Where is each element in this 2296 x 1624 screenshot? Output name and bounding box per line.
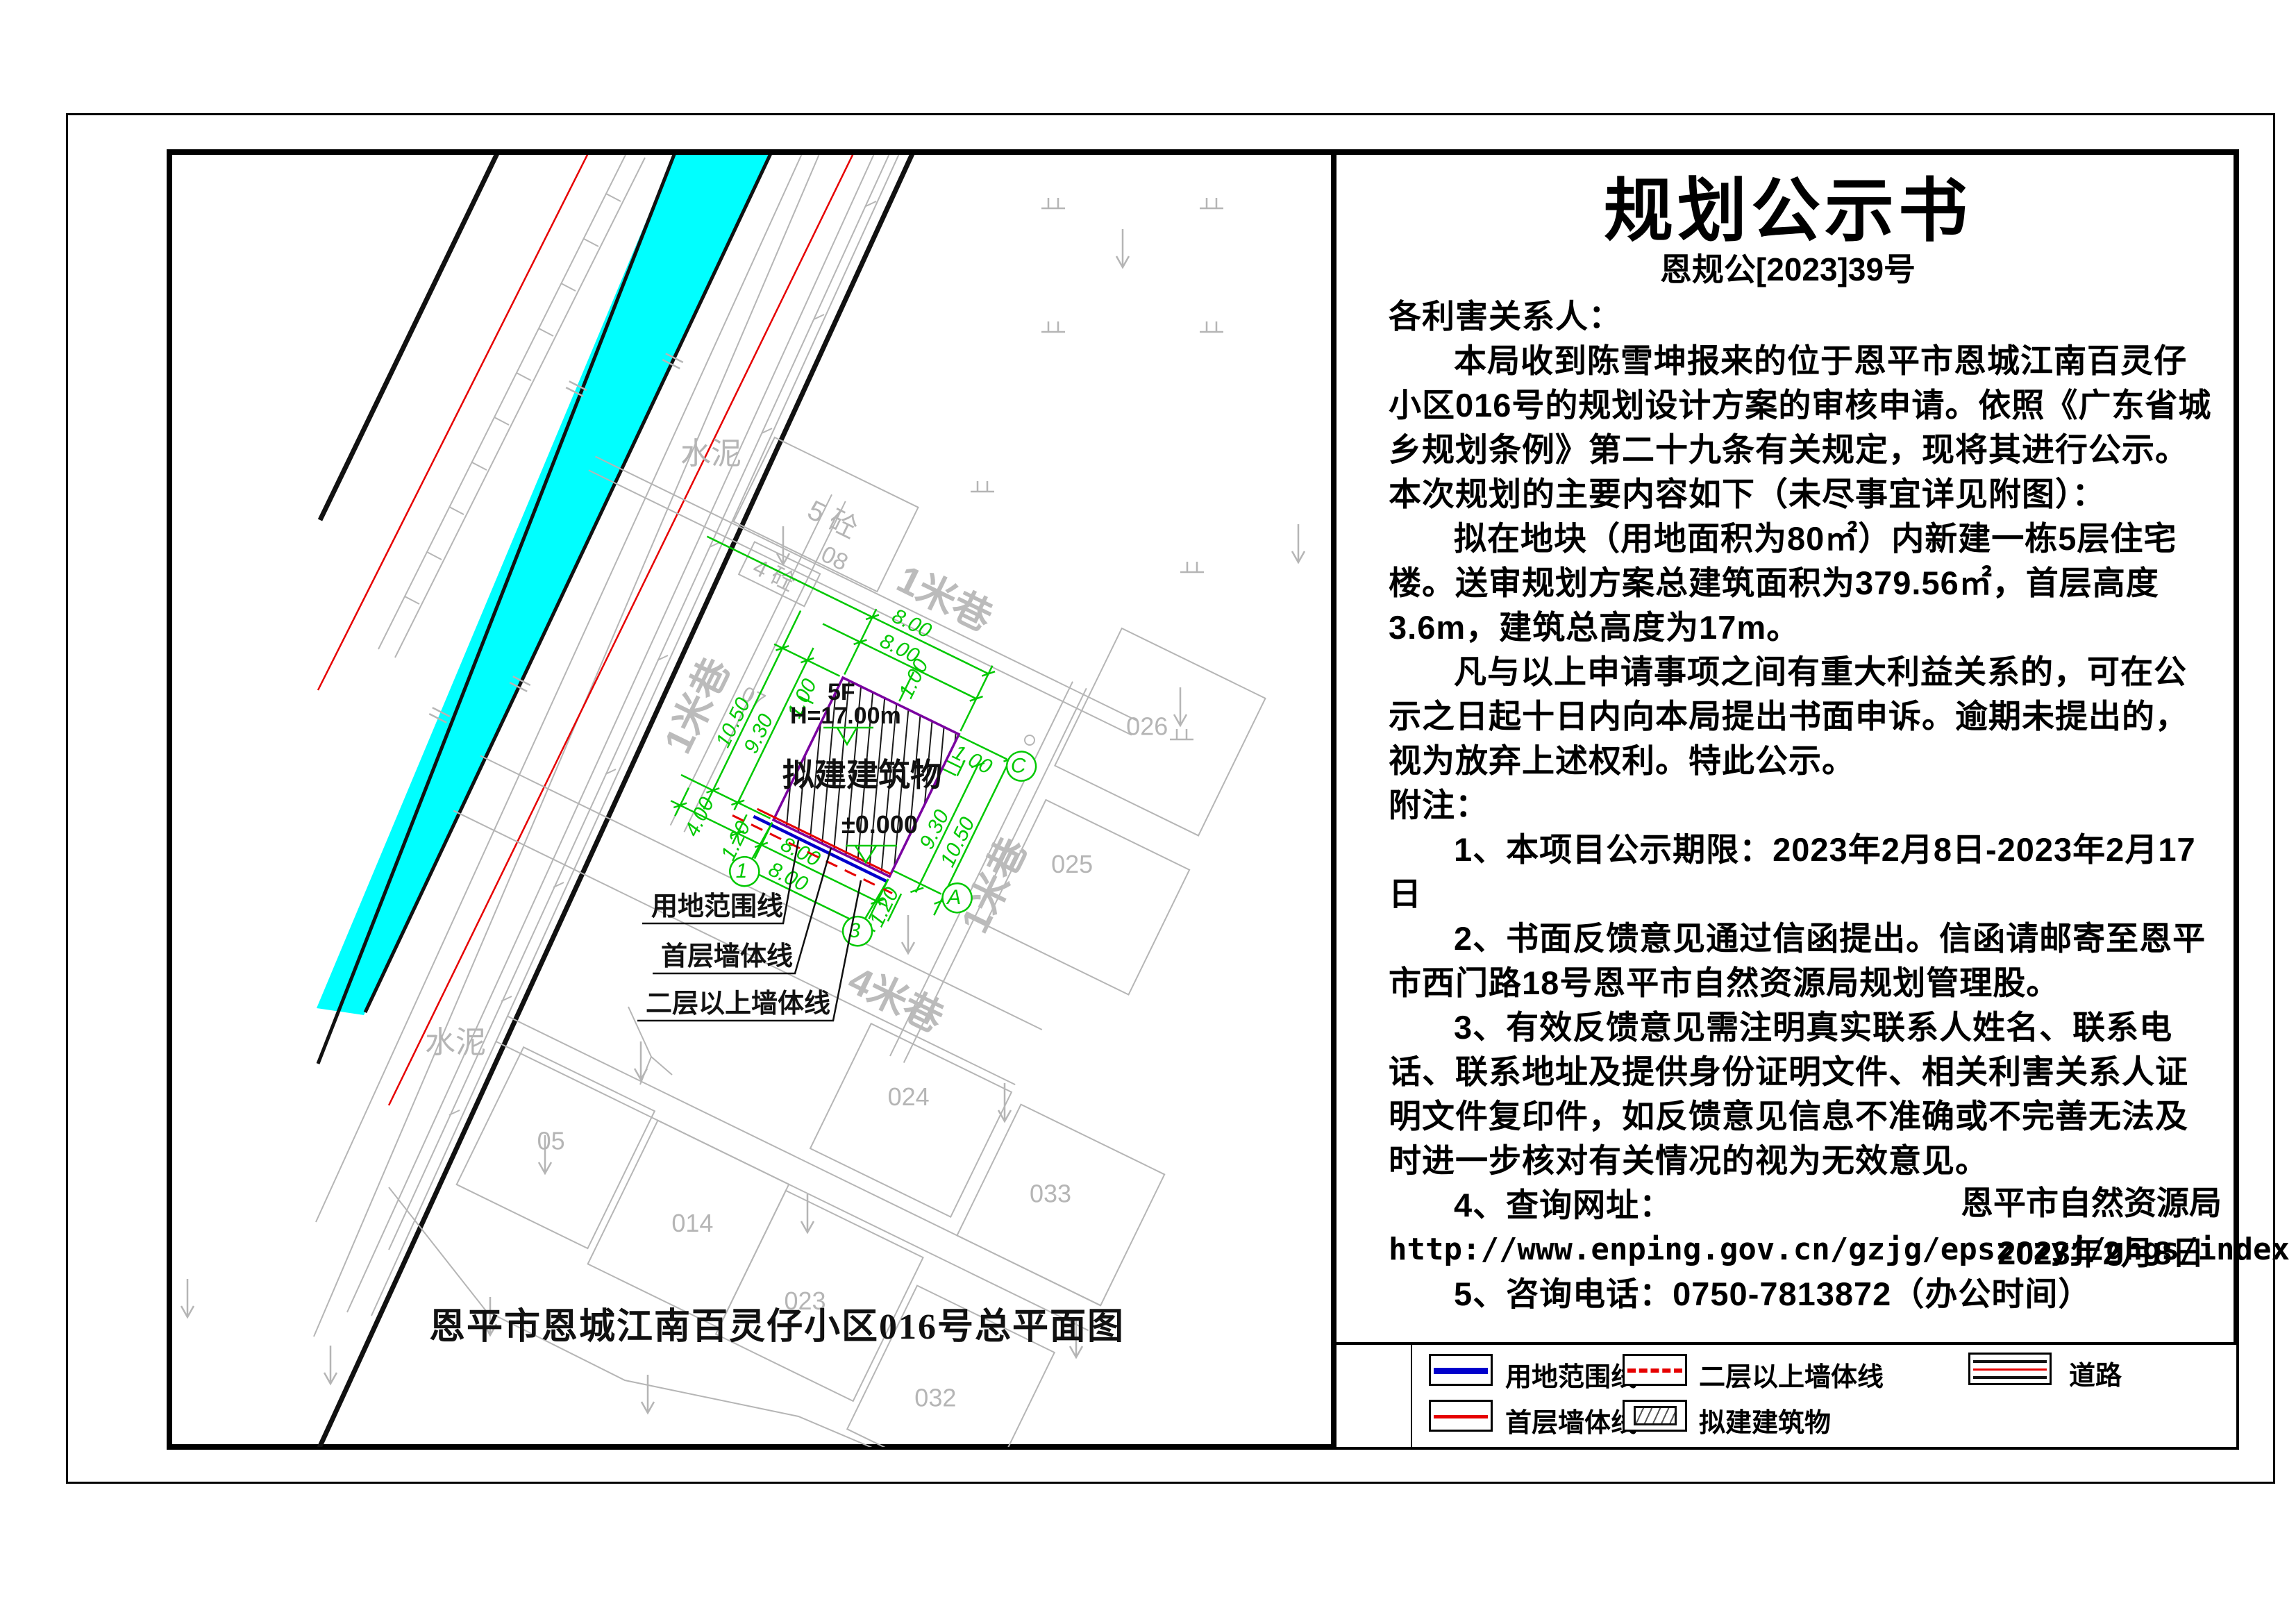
water-channel — [317, 155, 773, 1015]
legend-label-road: 道路 — [2069, 1354, 2122, 1392]
paragraph-project: 拟在地块（用地面积为80㎡）内新建一栋5层住宅楼。送审规划方案总建筑面积为379… — [1389, 517, 2215, 650]
planning-notice-page: 水泥 水泥 5 砼 08 — [0, 0, 2296, 1624]
legend-symbol-first-floor — [1429, 1400, 1493, 1432]
note-phone: 5、咨询电话：0750-7813872（办公时间） — [1389, 1272, 2215, 1316]
annotation-boundary: 用地范围线 — [651, 892, 783, 921]
parcel-number: 024 — [888, 1082, 930, 1111]
street-label-bottom: 4米巷 — [841, 957, 950, 1041]
ground-label-cement: 水泥 — [425, 1026, 486, 1060]
notice-body: 各利害关系人： 本局收到陈雪坤报来的位于恩平市恩城江南百灵仔小区016号的规划设… — [1389, 294, 2215, 1316]
signature-date: 2023年2月8日 — [1930, 1226, 2204, 1274]
building-label: 拟建建筑物 — [782, 757, 942, 793]
legend-divider — [1411, 1345, 1412, 1447]
plan-caption: 恩平市恩城江南百灵仔小区016号总平面图 — [429, 1307, 1125, 1347]
parcel-number: 033 — [1030, 1180, 1071, 1208]
parcel-number: 05 — [537, 1126, 565, 1155]
annotation-upper-floor: 二层以上墙体线 — [646, 989, 830, 1019]
channel-right-edge — [365, 155, 773, 1012]
parcel-number: 032 — [914, 1384, 956, 1412]
ground-label-cement: 水泥 — [680, 437, 741, 471]
river-road-band: 水泥 水泥 — [314, 155, 914, 1447]
dim-side-left: 4.00 — [680, 794, 719, 840]
legend-symbol-boundary — [1429, 1354, 1493, 1386]
legend-symbol-upper-floor — [1623, 1354, 1687, 1386]
building-floors: 5F — [828, 679, 855, 705]
parcel-label-08: 08 — [817, 541, 853, 576]
legend-label-upper-floor: 二层以上墙体线 — [1699, 1355, 1884, 1393]
axis-label-1: 1 — [736, 860, 748, 882]
legend-label-boundary: 用地范围线 — [1505, 1355, 1637, 1393]
note-period: 1、本项目公示期限：2023年2月8日-2023年2月17日 — [1389, 828, 2215, 916]
parcel-number: 025 — [1051, 850, 1093, 878]
building-level: ±0.000 — [841, 810, 918, 839]
cadastral-grid: 5 砼 08 4 砼 07 1米巷 4米巷 1米巷 1米巷 026 025 02… — [260, 370, 1331, 1447]
site-plan: 水泥 水泥 5 砼 08 — [172, 155, 1331, 1447]
annotation-first-floor: 首层墙体线 — [661, 942, 793, 971]
legend-symbol-building — [1623, 1400, 1687, 1432]
legend-label-building: 拟建建筑物 — [1699, 1401, 1831, 1439]
note-mail: 2、书面反馈意见通过信函提出。信函请邮寄至恩平市西门路18号恩平市自然资源局规划… — [1389, 916, 2215, 1005]
signature-agency: 恩平市自然资源局 — [1930, 1176, 2222, 1224]
survey-point — [1025, 735, 1034, 745]
parcel-number: 026 — [1126, 712, 1168, 740]
axis-label-C: C — [1011, 755, 1026, 778]
building-height: H=17.00m — [790, 703, 901, 729]
salutation: 各利害关系人： — [1389, 294, 2215, 339]
road-edge-line — [320, 155, 499, 520]
notes-label: 附注： — [1389, 783, 2215, 828]
channel-left-edge — [318, 155, 676, 1064]
page-title: 规划公示书 — [1336, 154, 2239, 255]
parcel-number: 014 — [671, 1209, 713, 1237]
paragraph-application: 本局收到陈雪坤报来的位于恩平市恩城江南百灵仔小区016号的规划设计方案的审核申请… — [1389, 339, 2215, 517]
legend-label-first-floor: 首层墙体线 — [1505, 1401, 1637, 1439]
axis-label-A: A — [946, 886, 961, 909]
dim-right-offset: 1.00 — [949, 740, 996, 778]
document-number: 恩规公[2023]39号 — [1336, 244, 2239, 290]
paragraph-objection: 凡与以上申请事项之间有重大利益关系的，可在公示之日起十日内向本局提出书面申诉。逾… — [1389, 650, 2215, 783]
legend-symbol-road — [1968, 1353, 2052, 1385]
note-validity: 3、有效反馈意见需注明真实联系人姓名、联系电话、联系地址及提供身份证明文件、相关… — [1389, 1005, 2215, 1183]
panel-divider — [1331, 149, 1336, 1450]
